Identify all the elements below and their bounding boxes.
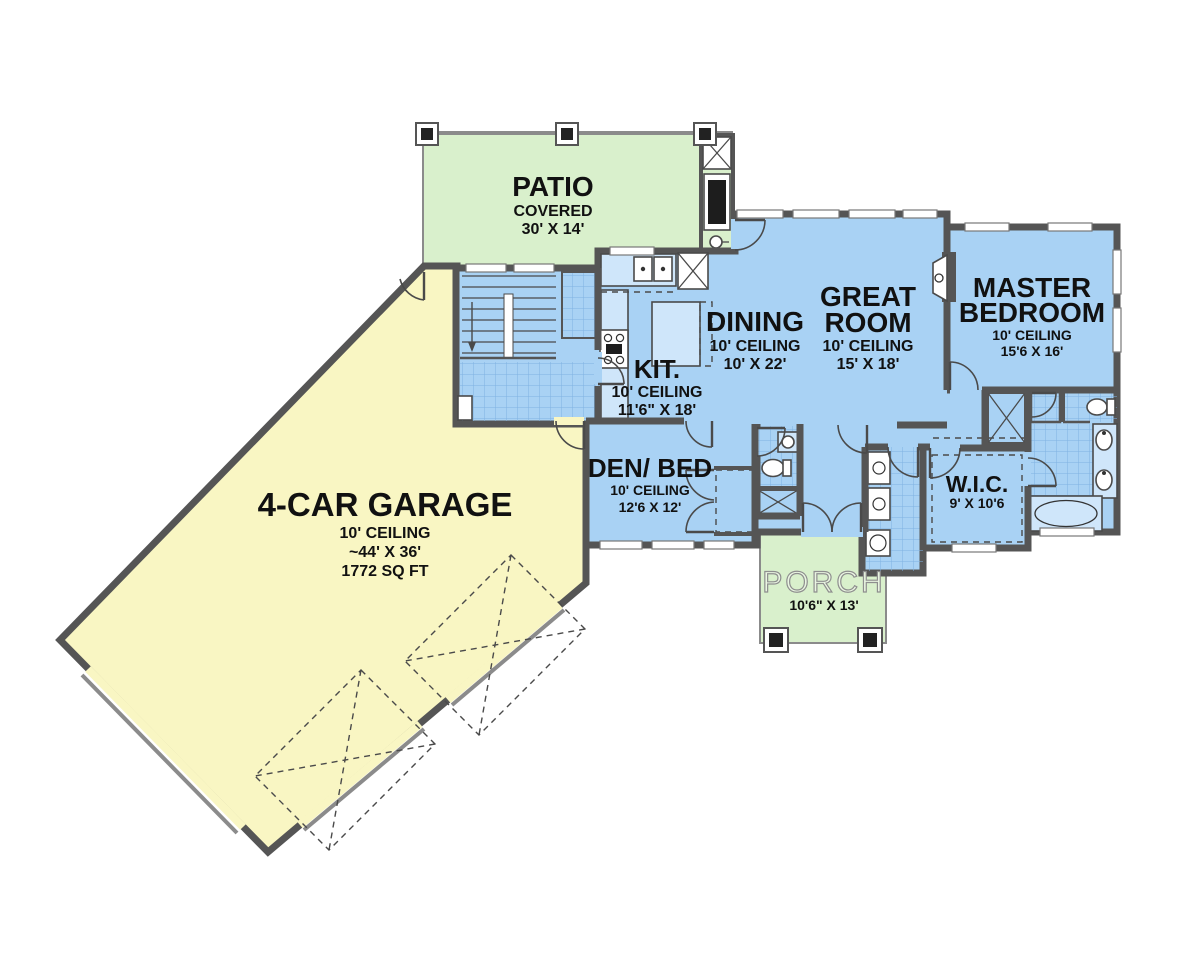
great-room-name-2: ROOM bbox=[824, 307, 911, 338]
den-bed-dims: 12'6 X 12' bbox=[619, 499, 682, 515]
laundry-room bbox=[866, 452, 890, 556]
great-room-dims: 15' X 18' bbox=[837, 356, 900, 373]
toilet-icon bbox=[1087, 399, 1115, 415]
vanity-sink-icon bbox=[1096, 470, 1112, 490]
mud-bench bbox=[458, 396, 472, 420]
floor-plan-page: PATIO COVERED 30' X 14' bbox=[0, 0, 1200, 960]
patio-pillar bbox=[556, 123, 578, 145]
wic-name: W.I.C. bbox=[946, 471, 1009, 497]
range-icon bbox=[600, 330, 628, 368]
porch-pillar bbox=[764, 628, 788, 652]
patio-pillar bbox=[694, 123, 716, 145]
master-bedroom-ceiling: 10' CEILING bbox=[992, 327, 1072, 343]
garage-area: 1772 SQ FT bbox=[341, 563, 428, 580]
linen-closet-x-box bbox=[758, 490, 798, 514]
floor-plan-drawing: PATIO COVERED 30' X 14' bbox=[0, 0, 1200, 960]
den-bed-ceiling: 10' CEILING bbox=[610, 482, 690, 498]
toilet-icon bbox=[762, 460, 791, 477]
wic-dims: 9' X 10'6 bbox=[950, 495, 1005, 511]
dining-name: DINING bbox=[706, 306, 804, 337]
master-bedroom-dims: 15'6 X 16' bbox=[1001, 343, 1064, 359]
dining-dims: 10' X 22' bbox=[724, 356, 787, 373]
master-bedroom-name-2: BEDROOM bbox=[959, 297, 1105, 328]
pantry-x-box bbox=[678, 253, 708, 289]
den-bed-name: DEN/ BED bbox=[588, 453, 712, 483]
porch-dims: 10'6" X 13' bbox=[789, 597, 858, 613]
wic-label: W.I.C. 9' X 10'6 bbox=[946, 471, 1009, 511]
patio-dims: 30' X 14' bbox=[522, 221, 585, 238]
utility-sink-icon bbox=[866, 530, 890, 556]
kitchen-dims: 11'6" X 18' bbox=[618, 402, 696, 419]
outdoor-kitchen bbox=[701, 135, 733, 251]
great-room-ceiling: 10' CEILING bbox=[823, 338, 914, 355]
garage-name: 4-CAR GARAGE bbox=[258, 486, 513, 523]
kitchen-name: KIT. bbox=[634, 354, 680, 384]
porch-name: PORCH bbox=[762, 566, 885, 599]
porch-pillar bbox=[858, 628, 882, 652]
bathtub-icon bbox=[1030, 496, 1102, 531]
patio-pillar bbox=[416, 123, 438, 145]
vanity-sink-icon bbox=[1096, 430, 1112, 450]
garage-ceiling: 10' CEILING bbox=[340, 525, 431, 542]
room-patio: PATIO COVERED 30' X 14' bbox=[416, 123, 733, 267]
kitchen-ceiling: 10' CEILING bbox=[612, 384, 703, 401]
patio-type: COVERED bbox=[513, 203, 592, 220]
garage-dims: ~44' X 36' bbox=[349, 544, 421, 561]
hall-closet-x-box bbox=[988, 393, 1025, 443]
patio-label: PATIO COVERED 30' X 14' bbox=[512, 171, 593, 238]
dining-ceiling: 10' CEILING bbox=[710, 338, 801, 355]
washer-icon bbox=[868, 452, 890, 484]
dryer-icon bbox=[868, 488, 890, 520]
grill-icon bbox=[704, 174, 730, 230]
patio-name: PATIO bbox=[512, 171, 593, 202]
